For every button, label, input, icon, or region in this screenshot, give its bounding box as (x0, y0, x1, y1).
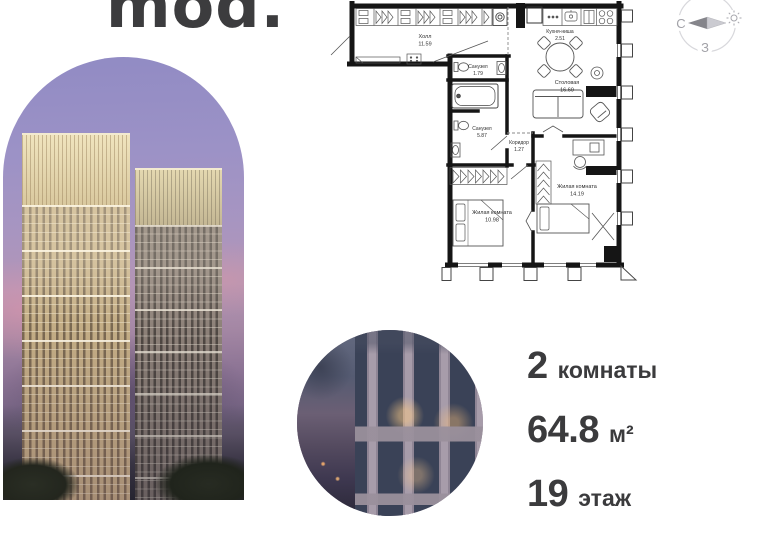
room-bath2-label: Санузел (472, 126, 492, 132)
floor-label: этаж (578, 485, 631, 511)
room-hall-label: Холл (419, 34, 432, 40)
ceiling-light-icon (591, 67, 603, 79)
floor-spec: 19этаж (527, 472, 657, 516)
closet-row (356, 9, 492, 26)
floor-value: 19 (527, 473, 568, 515)
area-spec: 64.8м² (527, 408, 657, 452)
rooms-value: 2 (527, 345, 548, 387)
toilet-1-icon (454, 63, 469, 72)
compass-north-label: С (676, 16, 685, 31)
bed-2 (537, 204, 589, 233)
compass: С З (666, 0, 754, 58)
area-unit: м² (609, 421, 634, 447)
room-bath2-area: 5.87 (477, 133, 487, 139)
room-bath1-label: Санузел (468, 64, 488, 70)
bathtub-icon (452, 84, 498, 108)
rooms-label: комнаты (558, 357, 658, 383)
room-hall-area: 11.59 (418, 42, 431, 48)
brand-logo: mod. (106, 0, 285, 37)
sink-1-icon (497, 62, 506, 75)
apartment-specs: 2комнаты 64.8м² 19этаж (527, 344, 657, 536)
room-kitchen-area: 2.51 (555, 36, 565, 42)
room-living2-area: 14.19 (570, 192, 584, 198)
room-dining-label: Столовая (555, 80, 580, 86)
room-corridor-label: Коридор (509, 140, 529, 146)
kitchen-row (527, 7, 617, 26)
tower-left-facade (22, 205, 130, 500)
tower-left (22, 133, 130, 500)
area-value: 64.8 (527, 409, 599, 451)
room-corridor-area: 1.27 (514, 147, 524, 153)
room-bath1-area: 1.79 (473, 71, 483, 77)
desk-icon (573, 140, 604, 169)
toilet-2-icon (454, 121, 469, 130)
sofa (533, 90, 583, 118)
wardrobe-row (450, 168, 507, 185)
rack-icon (536, 161, 551, 204)
dining-table (537, 36, 583, 78)
compass-needle-icon (688, 17, 726, 29)
rooms-spec: 2комнаты (527, 344, 657, 388)
hero-towers-photo (3, 57, 244, 500)
room-living2-label: Жилая комната (557, 184, 598, 190)
facade-photo (297, 330, 483, 516)
room-living1-area: 10.98 (485, 218, 499, 224)
washing-machine-icon (493, 9, 507, 26)
room-living1-label: Жилая комната (472, 210, 513, 216)
room-kitchen-label: Кухня-ниша (546, 29, 574, 35)
compass-west-label: З (701, 40, 709, 55)
tower-right (135, 168, 222, 500)
tower-left-crown (22, 133, 130, 207)
armchair (589, 101, 612, 124)
room-dining-area: 16.69 (560, 88, 574, 94)
floorplan: Холл 11.59 Кухня-ниша 2.51 Столовая 16.6… (330, 0, 660, 290)
tower-right-crown (135, 168, 222, 227)
city-view (297, 330, 355, 516)
